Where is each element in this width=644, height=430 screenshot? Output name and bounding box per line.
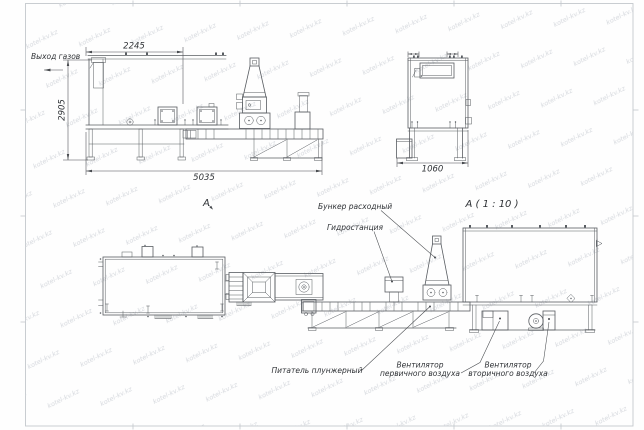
hydraulic-label: Гидростанция [327,223,384,232]
detail-view-label: A ( 1 : 10 ) [465,199,519,210]
feeder-label: Питатель плунжерный [272,366,363,375]
dim-top-value: 2245 [123,42,145,52]
technical-drawing: kotel-kv.kz kotel-kv.kz 2245 2 [0,0,644,430]
hopper-label: Бункер расходный [318,202,392,211]
gas-outlet-label: Выход газов [31,52,80,61]
plan-view-label: A [202,198,210,209]
primary-fan-label-line2: первичного воздуха [380,369,460,378]
dim-left-value: 2905 [58,99,68,121]
drawing-sheet: kotel-kv.kz kotel-kv.kz 2245 2 [0,0,644,430]
dim-1060-value: 1060 [422,165,444,175]
dim-bottom-value: 5035 [193,173,215,183]
